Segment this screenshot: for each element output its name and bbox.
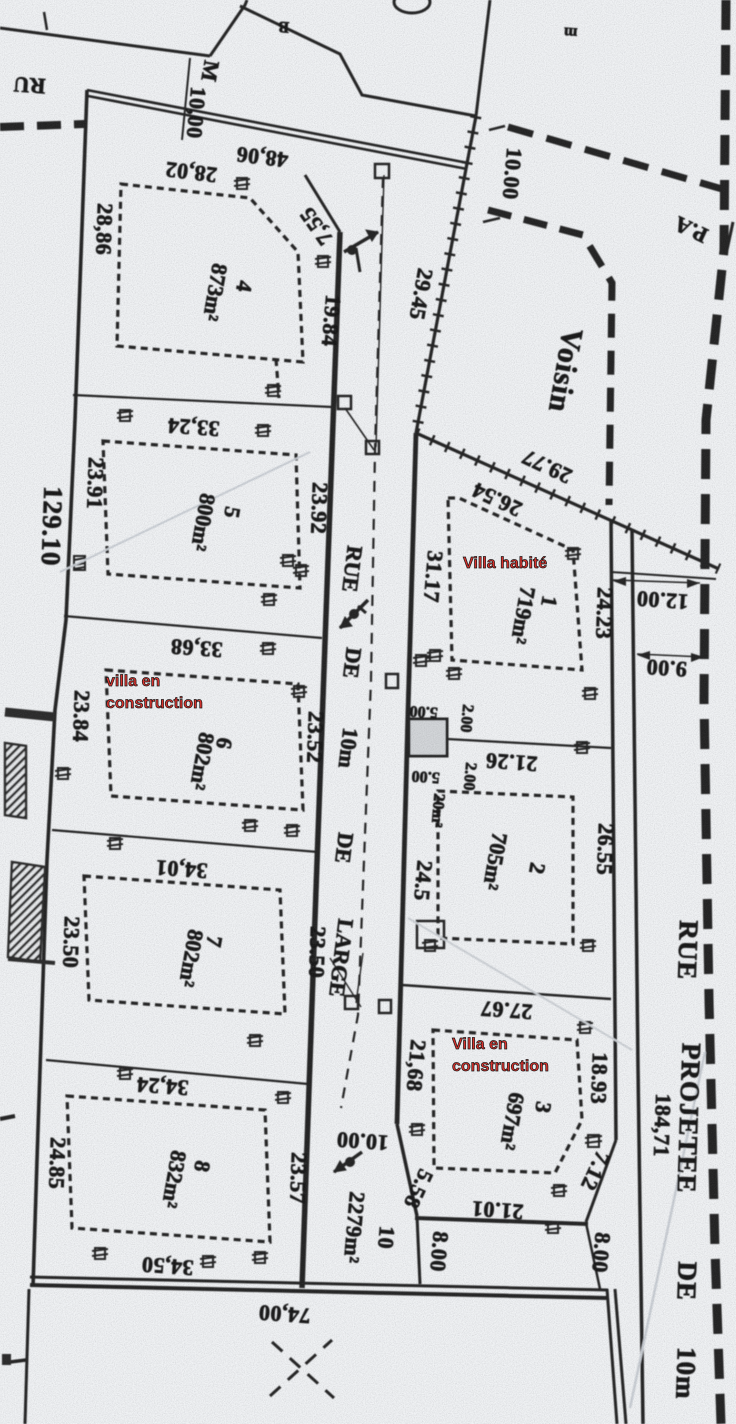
svg-text:construction: construction: [452, 1058, 549, 1075]
svg-text:Villa en: Villa en: [452, 1036, 508, 1053]
svg-text:construction: construction: [106, 695, 203, 712]
svg-text:Villa habité: Villa habité: [463, 555, 547, 572]
svg-text:villa en: villa en: [106, 673, 160, 690]
